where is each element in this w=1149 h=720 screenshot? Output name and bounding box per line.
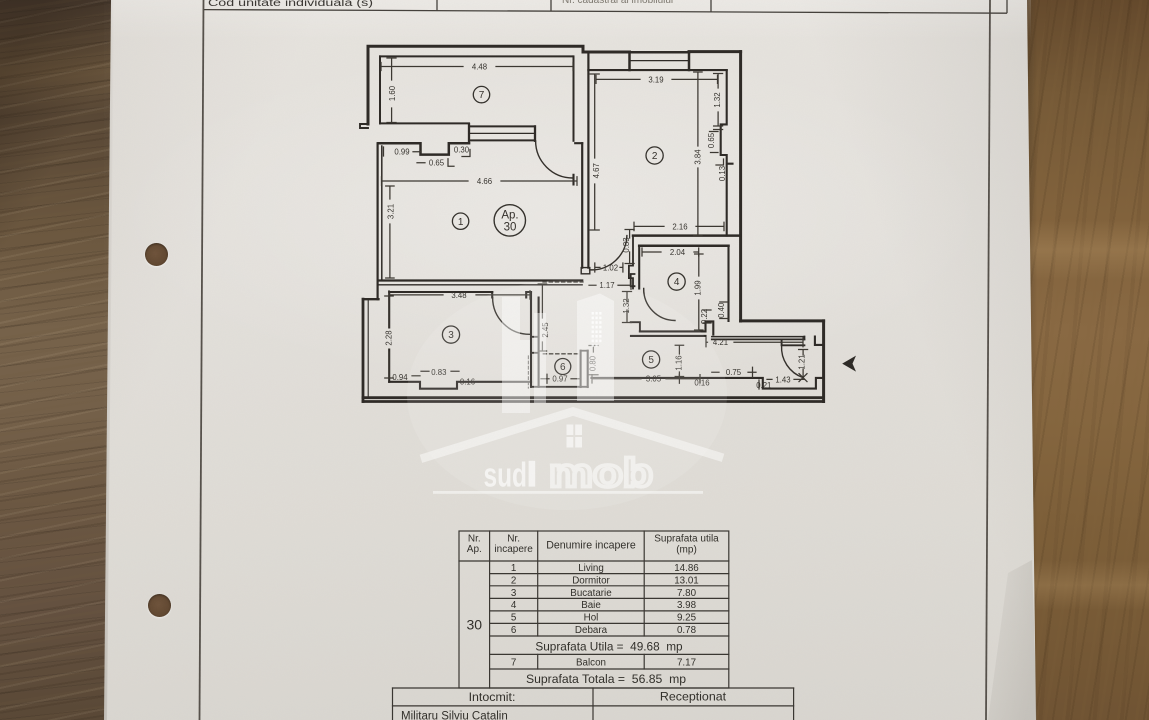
svg-text:9.25: 9.25: [677, 613, 697, 624]
svg-text:2.04: 2.04: [670, 248, 686, 257]
svg-text:incapere: incapere: [494, 544, 533, 555]
svg-text:3.21: 3.21: [387, 204, 396, 219]
svg-text:2: 2: [511, 575, 516, 586]
svg-text:Baie: Baie: [581, 600, 601, 611]
svg-text:3.98: 3.98: [677, 600, 697, 611]
svg-text:Cod unitate individuala (s): Cod unitate individuala (s): [208, 0, 373, 9]
svg-text:0.99: 0.99: [394, 147, 409, 156]
svg-text:1.32: 1.32: [713, 92, 722, 107]
svg-text:4.48: 4.48: [472, 62, 487, 71]
svg-text:0.94: 0.94: [392, 373, 408, 382]
svg-text:4: 4: [511, 600, 517, 611]
svg-text:Receptionat: Receptionat: [660, 689, 727, 703]
svg-text:Intocmit:: Intocmit:: [469, 690, 516, 704]
svg-text:Suprafata utila: Suprafata utila: [654, 534, 719, 545]
svg-text:30: 30: [467, 617, 483, 633]
svg-text:Hol: Hol: [584, 613, 599, 624]
svg-text:4.67: 4.67: [592, 163, 601, 178]
svg-text:0.22: 0.22: [700, 309, 709, 324]
svg-text:Militaru Silviu Catalin: Militaru Silviu Catalin: [401, 711, 508, 720]
svg-text:1.60: 1.60: [388, 85, 397, 101]
svg-text:(mp): (mp): [676, 545, 697, 556]
svg-text:2.16: 2.16: [672, 222, 687, 231]
svg-text:Nr.: Nr.: [507, 534, 520, 545]
svg-text:3: 3: [511, 588, 517, 599]
svg-text:Suprafata Totala = 56.85 mp: Suprafata Totala = 56.85 mp: [526, 672, 686, 686]
svg-text:0.30: 0.30: [454, 145, 470, 154]
svg-text:13.01: 13.01: [674, 575, 699, 586]
svg-text:1.43: 1.43: [775, 375, 790, 384]
svg-text:0.21: 0.21: [756, 381, 771, 390]
svg-text:0.13: 0.13: [718, 166, 727, 181]
svg-text:sud: sud: [484, 457, 528, 495]
svg-text:1: 1: [511, 563, 516, 574]
svg-text:5: 5: [511, 613, 517, 624]
svg-text:3.84: 3.84: [693, 149, 702, 165]
svg-text:4.21: 4.21: [713, 338, 728, 347]
svg-text:Nr.: Nr.: [468, 534, 481, 545]
svg-text:6: 6: [511, 625, 517, 636]
svg-text:7: 7: [479, 90, 485, 101]
svg-text:Living: Living: [578, 563, 604, 574]
svg-text:Nr. cadastral al imobilului: Nr. cadastral al imobilului: [562, 0, 673, 6]
svg-text:Ap.: Ap.: [467, 544, 482, 555]
svg-text:7.17: 7.17: [677, 658, 696, 669]
svg-text:0.65: 0.65: [707, 132, 716, 148]
svg-text:0.83: 0.83: [622, 237, 631, 252]
svg-text:4.66: 4.66: [477, 177, 492, 186]
svg-text:7: 7: [511, 658, 516, 669]
svg-text:1: 1: [458, 217, 464, 228]
svg-text:Suprafata Utila = 49.68 mp: Suprafata Utila = 49.68 mp: [535, 640, 683, 654]
svg-text:3.19: 3.19: [648, 75, 663, 84]
svg-text:2.28: 2.28: [385, 330, 394, 345]
svg-text:0.65: 0.65: [429, 158, 445, 167]
svg-text:0.40: 0.40: [717, 302, 726, 318]
svg-text:1.99: 1.99: [693, 280, 702, 295]
svg-text:Dormitor: Dormitor: [572, 575, 610, 586]
svg-text:7.80: 7.80: [677, 588, 697, 599]
svg-text:1.02: 1.02: [603, 263, 618, 272]
svg-text:4: 4: [674, 277, 680, 288]
svg-text:2: 2: [652, 151, 658, 162]
svg-text:0.75: 0.75: [726, 368, 742, 377]
svg-text:Debara: Debara: [575, 625, 608, 636]
svg-text:Bucatarie: Bucatarie: [570, 588, 612, 599]
svg-text:0.78: 0.78: [677, 625, 697, 636]
svg-text:30: 30: [504, 222, 517, 234]
svg-text:14.86: 14.86: [674, 563, 699, 574]
svg-text:3.48: 3.48: [451, 291, 466, 300]
svg-text:mob: mob: [549, 452, 653, 496]
svg-text:1.21: 1.21: [798, 354, 807, 369]
svg-text:Ap.: Ap.: [501, 210, 518, 222]
svg-text:Balcon: Balcon: [576, 658, 606, 669]
svg-text:Denumire incapere: Denumire incapere: [546, 540, 636, 552]
